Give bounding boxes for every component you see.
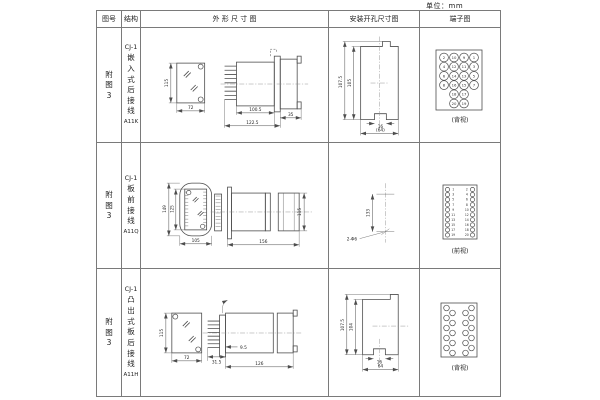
svg-text:19: 19 bbox=[451, 233, 455, 237]
header-outline: 外 形 尺 寸 图 bbox=[141, 11, 329, 28]
structure-cell-row2: CJ-1 板 前 接 线 A11Q bbox=[122, 143, 141, 269]
svg-text:10: 10 bbox=[452, 54, 457, 59]
svg-text:16: 16 bbox=[465, 223, 469, 227]
terminal-cell-row1: 2 4 6 8 10 12 14 16 18 20 9 11 13 15 17 … bbox=[420, 28, 500, 143]
dim-span-width: 64 bbox=[378, 364, 384, 370]
dim-front-height: 149 bbox=[162, 204, 167, 212]
outline-cell-row1: 115 72 100.5 35 bbox=[141, 28, 329, 143]
outline-drawing-a11h: 115 72 31.5 9.5 bbox=[141, 269, 328, 396]
mounting-drawing-a11h: 107.5 104 16 64 bbox=[329, 269, 419, 396]
structure-code: A11Q bbox=[123, 229, 138, 237]
svg-text:1: 1 bbox=[452, 187, 454, 191]
structure-char: 线 bbox=[127, 216, 135, 227]
dim-front-height: 115 bbox=[159, 329, 165, 337]
dim-side-depth: 156 bbox=[259, 238, 267, 244]
svg-text:13: 13 bbox=[451, 217, 455, 221]
svg-text:8: 8 bbox=[466, 202, 468, 206]
svg-text:5: 5 bbox=[452, 197, 454, 201]
mounting-cell-row1: 107.5 105 16 (64) bbox=[329, 28, 420, 143]
terminal-numbers: 2 4 6 8 10 12 14 16 18 20 9 11 13 15 17 … bbox=[443, 54, 476, 105]
svg-text:16: 16 bbox=[452, 82, 457, 87]
terminal-circles bbox=[440, 53, 479, 108]
svg-text:3: 3 bbox=[452, 192, 454, 196]
hole-note: 2-Φ6 bbox=[347, 236, 358, 242]
structure-code: A11H bbox=[124, 372, 139, 380]
svg-text:12: 12 bbox=[465, 212, 469, 216]
side-view: 31.5 9.5 126 bbox=[203, 300, 302, 369]
view-label: (前视) bbox=[452, 247, 469, 255]
dim-body-depth: 126 bbox=[255, 361, 263, 367]
svg-text:9: 9 bbox=[452, 207, 454, 211]
side-view: 156 115 bbox=[211, 187, 312, 247]
figure-char: 图 bbox=[105, 329, 113, 337]
structure-char: 式 bbox=[127, 75, 135, 86]
dim-outer-height: 107.5 bbox=[338, 75, 344, 87]
spec-table: 图号 结构 外 形 尺 寸 图 安装开孔尺寸图 端子图 附 图 3 CJ-1 嵌… bbox=[96, 10, 501, 397]
header-figure: 图号 bbox=[97, 11, 122, 28]
structure-char: 嵌 bbox=[127, 53, 135, 64]
terminal-diagram-a11q: 1 3 5 7 9 11 13 15 17 19 2 4 6 8 10 12 1 bbox=[420, 143, 500, 269]
mounting-drawing-a11k: 107.5 105 16 (64) bbox=[329, 28, 419, 143]
svg-text:2: 2 bbox=[466, 187, 468, 191]
structure-cell-row1: CJ-1 嵌 入 式 后 接 线 A11K bbox=[122, 28, 141, 143]
header-structure: 结构 bbox=[122, 11, 141, 28]
terminal-diagram-a11h: (背视) bbox=[420, 269, 500, 396]
svg-text:15: 15 bbox=[462, 82, 467, 87]
structure-char: 凸 bbox=[127, 295, 135, 306]
structure-char: 后 bbox=[127, 85, 135, 96]
front-view: 115 72 bbox=[164, 63, 205, 113]
structure-char: 前 bbox=[127, 195, 135, 206]
svg-text:7: 7 bbox=[452, 202, 454, 206]
figure-char: 图 bbox=[105, 81, 113, 89]
outline-drawing-a11k: 115 72 100.5 35 bbox=[141, 28, 328, 143]
dim-front-width: 72 bbox=[184, 355, 190, 361]
svg-text:13: 13 bbox=[462, 73, 467, 78]
svg-text:18: 18 bbox=[452, 91, 457, 96]
spec-sheet: 单位：mm 图号 结构 外 形 尺 寸 图 安装开孔尺寸图 端子图 附 图 3 … bbox=[0, 0, 600, 400]
dim-window-height: 125 bbox=[169, 204, 174, 212]
view-label: (背视) bbox=[452, 364, 469, 372]
svg-text:17: 17 bbox=[462, 91, 467, 96]
structure-char: 接 bbox=[127, 206, 135, 217]
view-label: (背视) bbox=[452, 116, 469, 124]
structure-char: 入 bbox=[127, 64, 135, 75]
structure-char: 板 bbox=[127, 184, 135, 195]
svg-text:17: 17 bbox=[451, 228, 455, 232]
structure-char: 后 bbox=[127, 338, 135, 349]
dim-stud-depth: 31.5 bbox=[212, 359, 222, 365]
terminal-circles bbox=[445, 187, 474, 237]
terminal-cell-row3: (背视) bbox=[420, 269, 500, 396]
structure-char: 接 bbox=[127, 349, 135, 360]
terminal-cell-row2: 1 3 5 7 9 11 13 15 17 19 2 4 6 8 10 12 1 bbox=[420, 143, 500, 269]
structure-model: CJ-1 bbox=[125, 174, 138, 183]
structure-char: 线 bbox=[127, 359, 135, 370]
figure-char: 附 bbox=[105, 318, 113, 326]
dim-panel-gap: 9.5 bbox=[240, 345, 247, 351]
svg-text:6: 6 bbox=[466, 197, 468, 201]
mounting-drawing-a11q: 133 2-Φ6 bbox=[329, 143, 419, 269]
figure-char: 附 bbox=[105, 71, 113, 79]
figure-char: 3 bbox=[107, 92, 112, 100]
figure-char: 附 bbox=[105, 191, 113, 199]
dim-front-width: 72 bbox=[188, 104, 194, 110]
dim-outer-height: 107.5 bbox=[340, 319, 346, 331]
structure-char: 板 bbox=[127, 327, 135, 338]
mounting-cell-row2: 133 2-Φ6 bbox=[329, 143, 420, 269]
structure-model: CJ-1 bbox=[125, 285, 138, 294]
figure-cell-row2: 附 图 3 bbox=[97, 143, 122, 269]
structure-model: CJ-1 bbox=[125, 43, 138, 52]
svg-text:11: 11 bbox=[462, 64, 467, 69]
svg-text:18: 18 bbox=[465, 228, 469, 232]
structure-code: A11K bbox=[124, 119, 138, 127]
svg-text:10: 10 bbox=[465, 207, 469, 211]
dim-inner-height: 104 bbox=[349, 323, 355, 331]
figure-cell-row1: 附 图 3 bbox=[97, 28, 122, 143]
dim-span-width: (64) bbox=[376, 127, 385, 133]
svg-text:20: 20 bbox=[465, 233, 469, 237]
svg-text:20: 20 bbox=[452, 100, 457, 105]
side-view: 100.5 35 122.5 bbox=[221, 49, 309, 128]
svg-text:14: 14 bbox=[452, 73, 457, 78]
dim-side-height: 115 bbox=[297, 207, 303, 215]
figure-char: 3 bbox=[107, 212, 112, 220]
outline-cell-row3: 115 72 31.5 9.5 bbox=[141, 269, 329, 396]
figure-char: 图 bbox=[105, 202, 113, 210]
terminal-numbers: 1 3 5 7 9 11 13 15 17 19 2 4 6 8 10 12 1 bbox=[451, 187, 469, 237]
dim-rear-depth: 35 bbox=[288, 111, 294, 117]
svg-text:12: 12 bbox=[452, 64, 457, 69]
structure-cell-row3: CJ-1 凸 出 式 板 后 接 线 A11H bbox=[122, 269, 141, 396]
structure-char: 式 bbox=[127, 317, 135, 328]
dim-inner-height: 105 bbox=[347, 78, 353, 86]
front-view: 115 72 bbox=[159, 313, 202, 363]
svg-text:14: 14 bbox=[465, 217, 469, 221]
dim-front-height: 115 bbox=[164, 78, 170, 86]
outline-drawing-a11q: 149 125 105 156 bbox=[141, 143, 328, 269]
dim-body-depth: 100.5 bbox=[249, 106, 261, 112]
structure-char: 接 bbox=[127, 96, 135, 107]
header-mounting: 安装开孔尺寸图 bbox=[329, 11, 420, 28]
structure-char: 出 bbox=[127, 306, 135, 317]
terminal-diagram-a11k: 2 4 6 8 10 12 14 16 18 20 9 11 13 15 17 … bbox=[420, 28, 500, 143]
figure-cell-row3: 附 图 3 bbox=[97, 269, 122, 396]
dim-total-depth: 122.5 bbox=[246, 119, 258, 125]
dim-front-width: 105 bbox=[192, 237, 200, 243]
mounting-cell-row3: 107.5 104 16 64 bbox=[329, 269, 420, 396]
svg-text:15: 15 bbox=[451, 223, 455, 227]
front-view: 149 125 105 bbox=[162, 183, 212, 246]
svg-text:11: 11 bbox=[451, 212, 455, 216]
structure-char: 线 bbox=[127, 106, 135, 117]
terminal-circles bbox=[444, 305, 475, 356]
header-terminal: 端子图 bbox=[420, 11, 500, 28]
dim-hole-span: 133 bbox=[366, 208, 372, 216]
svg-text:4: 4 bbox=[466, 192, 468, 196]
figure-char: 3 bbox=[107, 339, 112, 347]
outline-cell-row2: 149 125 105 156 bbox=[141, 143, 329, 269]
svg-text:19: 19 bbox=[462, 100, 467, 105]
